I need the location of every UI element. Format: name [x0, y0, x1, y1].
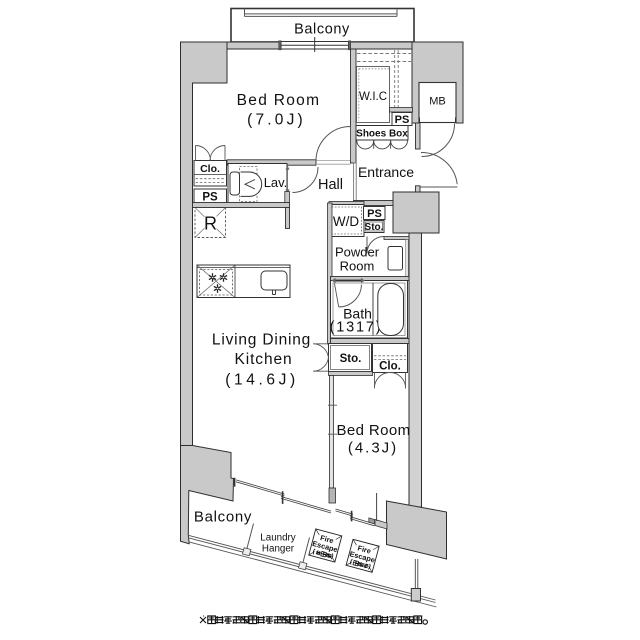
svg-text:Room: Room: [340, 259, 375, 274]
svg-text:Powder: Powder: [335, 245, 380, 260]
svg-text:PS: PS: [202, 192, 218, 204]
svg-text:PS: PS: [395, 114, 410, 126]
svg-text:Hall: Hall: [318, 177, 343, 193]
svg-text:W/D: W/D: [333, 214, 359, 229]
svg-text:(1317): (1317): [330, 320, 383, 336]
svg-text:Sto.: Sto.: [340, 353, 362, 365]
svg-text:(7.0J): (7.0J): [247, 112, 306, 129]
svg-text:Entrance: Entrance: [358, 164, 414, 180]
svg-text:Bed Room: Bed Room: [237, 92, 321, 109]
svg-text:(4.3J): (4.3J): [348, 440, 398, 457]
svg-text:Balcony: Balcony: [294, 22, 350, 38]
svg-text:Kitchen: Kitchen: [235, 351, 293, 368]
svg-text:Hanger: Hanger: [262, 544, 295, 555]
svg-text:Shoes Box: Shoes Box: [356, 129, 408, 140]
svg-text:Living Dining: Living Dining: [212, 332, 311, 349]
svg-text:R: R: [204, 214, 217, 234]
svg-text:W.I.C: W.I.C: [359, 91, 387, 103]
svg-text:Lav.: Lav.: [264, 175, 288, 190]
svg-text:Clo.: Clo.: [379, 361, 401, 373]
svg-text:Balcony: Balcony: [194, 509, 252, 526]
svg-text:Sto.: Sto.: [365, 222, 384, 233]
svg-text:(14.6J): (14.6J): [225, 372, 298, 389]
svg-text:Bed Room: Bed Room: [336, 422, 410, 439]
svg-text:MB: MB: [429, 96, 446, 108]
svg-text:Laundry: Laundry: [260, 533, 296, 544]
svg-text:Clo.: Clo.: [200, 163, 220, 175]
svg-text:PS: PS: [367, 208, 382, 220]
